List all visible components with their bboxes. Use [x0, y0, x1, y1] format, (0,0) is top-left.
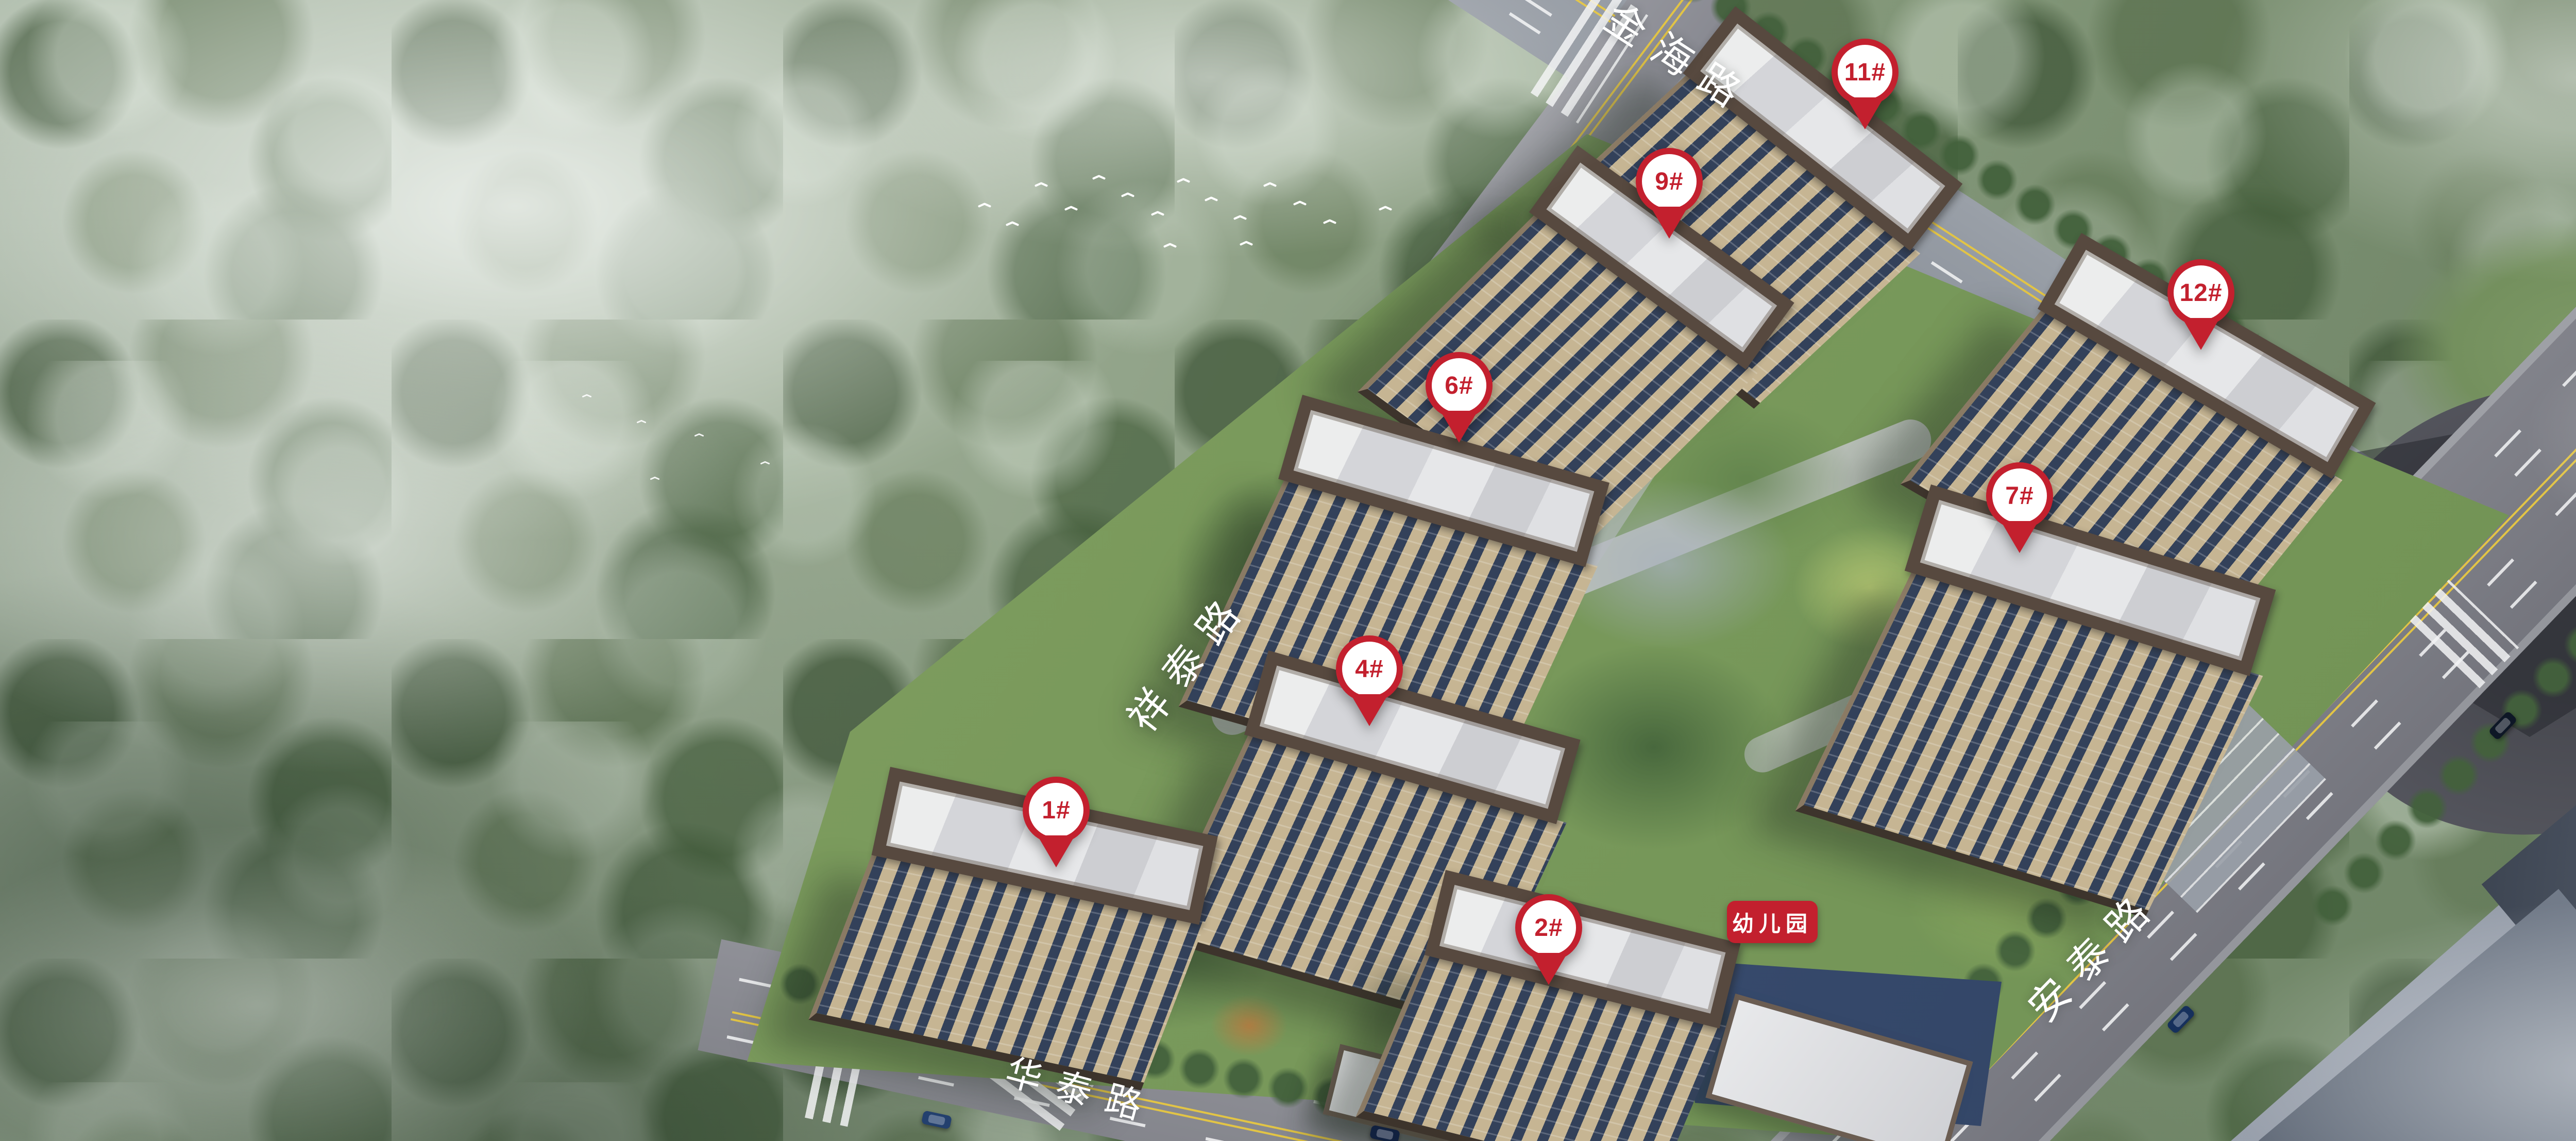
pin-label: 1# [1029, 783, 1083, 837]
pin-building-7: 7# [1986, 462, 2053, 553]
kindergarten-label: 幼儿园 [1727, 901, 1818, 943]
bird-icon [582, 394, 592, 398]
pin-label: 7# [1992, 468, 2047, 523]
bird-icon [760, 461, 770, 465]
bird-icon [1263, 181, 1277, 188]
pin-label: 6# [1432, 358, 1486, 413]
pin-label: 4# [1342, 642, 1397, 696]
pin-circle: 11# [1832, 39, 1899, 106]
bird-icon [1163, 242, 1177, 248]
bird-icon [1379, 205, 1392, 211]
bird-icon [1205, 196, 1218, 202]
pin-tail [1439, 411, 1479, 443]
pin-building-1: 1# [1023, 777, 1090, 867]
bird-icon [1006, 221, 1019, 227]
pin-tail [1529, 953, 1568, 985]
bird-icon [1293, 200, 1307, 206]
aerial-render: 金海路 祥泰路 安泰路 华泰路 幼儿园 1# 2# 4# 6# 7# 9# 11… [0, 0, 2576, 1141]
pin-label: 12# [2174, 265, 2228, 320]
bird-icon [1121, 192, 1134, 198]
bird-icon [1240, 240, 1253, 246]
pin-circle: 6# [1426, 352, 1493, 419]
pin-building-4: 4# [1336, 635, 1403, 726]
bird-icon [694, 433, 704, 438]
bird-icon [1092, 174, 1106, 180]
pin-tail [1650, 207, 1689, 239]
pin-building-2: 2# [1515, 894, 1582, 985]
pin-building-11: 11# [1832, 39, 1899, 129]
pin-building-12: 12# [2167, 259, 2234, 350]
bird-icon [978, 202, 991, 208]
bird-icon [1151, 210, 1164, 216]
pin-circle: 4# [1336, 635, 1403, 702]
pin-tail [2000, 521, 2039, 553]
pin-circle: 12# [2167, 259, 2234, 326]
pin-circle: 2# [1515, 894, 1582, 961]
pin-circle: 1# [1023, 777, 1090, 844]
pin-building-6: 6# [1426, 352, 1493, 443]
pin-label: 9# [1642, 154, 1697, 209]
pin-label: 11# [1838, 45, 1892, 99]
pin-tail [1350, 694, 1389, 726]
pin-tail [2181, 318, 2221, 350]
bird-icon [637, 420, 647, 424]
pin-circle: 7# [1986, 462, 2053, 529]
pin-tail [1845, 97, 1885, 129]
bird-icon [1035, 181, 1048, 188]
pin-building-9: 9# [1636, 148, 1703, 239]
pin-circle: 9# [1636, 148, 1703, 215]
bird-icon [650, 476, 660, 481]
pin-tail [1037, 835, 1076, 867]
bird-icon [1233, 214, 1247, 221]
pin-label: 2# [1521, 900, 1576, 955]
bird-icon [1064, 205, 1078, 211]
bird-icon [1177, 177, 1190, 183]
bird-icon [1323, 219, 1336, 225]
